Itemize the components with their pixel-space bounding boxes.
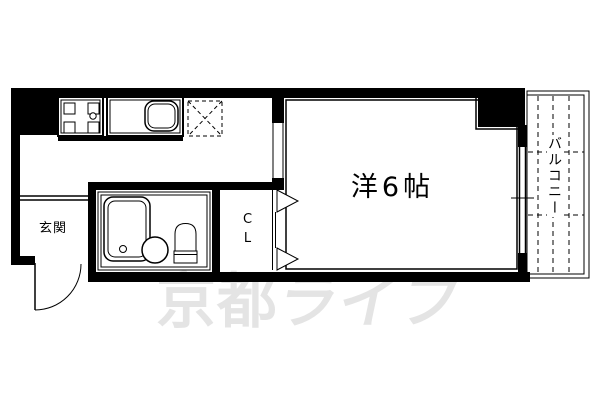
- closet-label: CL: [241, 212, 254, 250]
- folding-door-icon: [277, 190, 298, 270]
- entrance-label: 玄関: [33, 217, 73, 236]
- main-room-label: 洋6帖: [330, 165, 455, 204]
- closet-front: [273, 190, 276, 270]
- entrance-door-swing-icon: [35, 263, 81, 310]
- toilet-icon: [174, 224, 197, 264]
- floorplan-canvas: 京都ライフ: [0, 0, 600, 400]
- kitchen-sink-icon: [107, 97, 183, 136]
- counter-front-edge: [58, 136, 183, 141]
- stove-burner-icon: [58, 97, 103, 136]
- sliding-window-icon: [511, 147, 534, 253]
- refrigerator-space-icon: [188, 101, 222, 136]
- balcony-label: バルコニー: [547, 135, 561, 217]
- floorplan-drawing: [0, 0, 600, 400]
- wash-basin-icon: [142, 237, 168, 263]
